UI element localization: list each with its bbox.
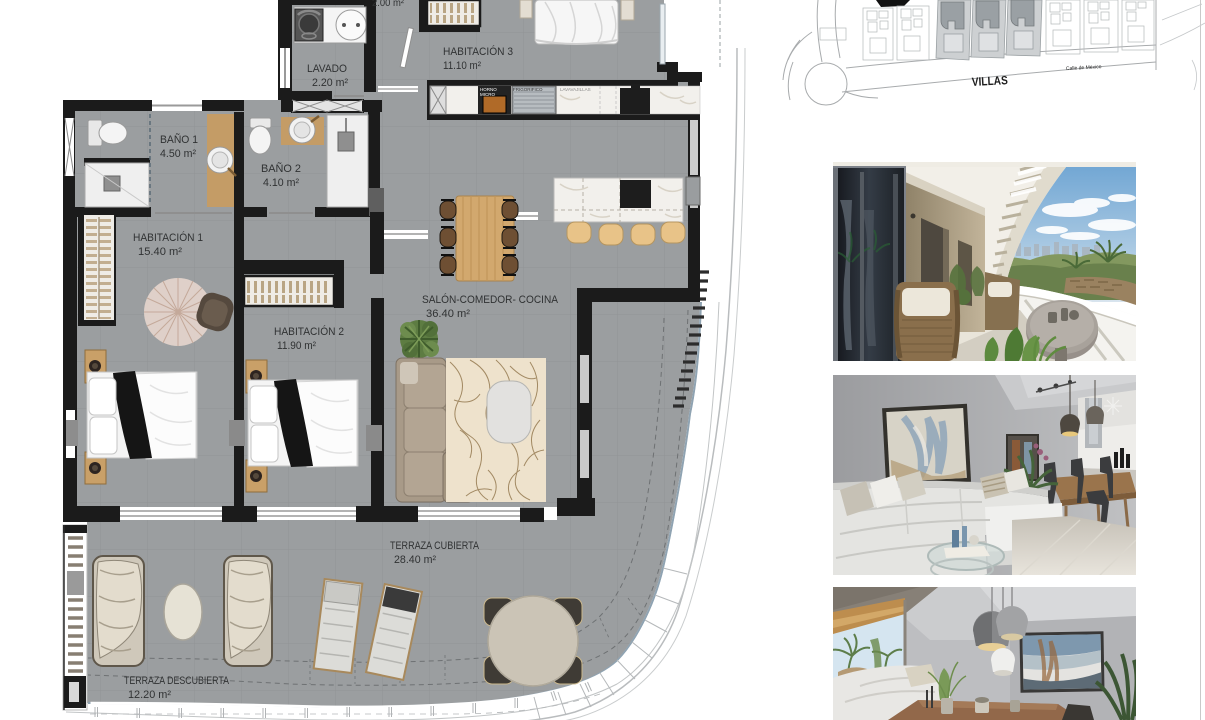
svg-text:2.20 m²: 2.20 m² [312, 77, 348, 89]
svg-text:VILLAS: VILLAS [971, 73, 1008, 89]
svg-text:SALÓN-COMEDOR- COCINA: SALÓN-COMEDOR- COCINA [422, 293, 559, 306]
svg-text:TERRAZA CUBIERTA: TERRAZA CUBIERTA [390, 540, 480, 552]
svg-text:4.50 m²: 4.50 m² [160, 148, 196, 160]
svg-text:28.40 m²: 28.40 m² [394, 554, 436, 566]
svg-text:15.40 m²: 15.40 m² [138, 246, 182, 258]
svg-text:36.40 m²: 36.40 m² [426, 308, 470, 320]
svg-text:TERRAZA DESCUBIERTA: TERRAZA DESCUBIERTA [124, 675, 230, 687]
svg-text:11.90 m²: 11.90 m² [277, 340, 316, 352]
svg-text:4.10 m²: 4.10 m² [263, 177, 299, 189]
svg-text:HABITACIÓN 2: HABITACIÓN 2 [274, 325, 344, 338]
svg-text:HABITACIÓN 1: HABITACIÓN 1 [133, 231, 203, 244]
svg-text:MICRO: MICRO [480, 92, 495, 97]
svg-text:BAÑO 2: BAÑO 2 [261, 162, 301, 175]
svg-text:LAVADO: LAVADO [307, 63, 347, 75]
svg-text:LAVAVAJILLAS: LAVAVAJILLAS [560, 87, 591, 92]
svg-text:HABITACIÓN 3: HABITACIÓN 3 [443, 45, 513, 58]
svg-text:BAÑO 1: BAÑO 1 [160, 133, 198, 146]
svg-text:11.10 m²: 11.10 m² [443, 60, 481, 72]
svg-text:FRIGORIFICO: FRIGORIFICO [513, 87, 543, 92]
svg-text:2.00 m²: 2.00 m² [372, 0, 405, 9]
svg-text:12.20 m²: 12.20 m² [128, 689, 171, 701]
